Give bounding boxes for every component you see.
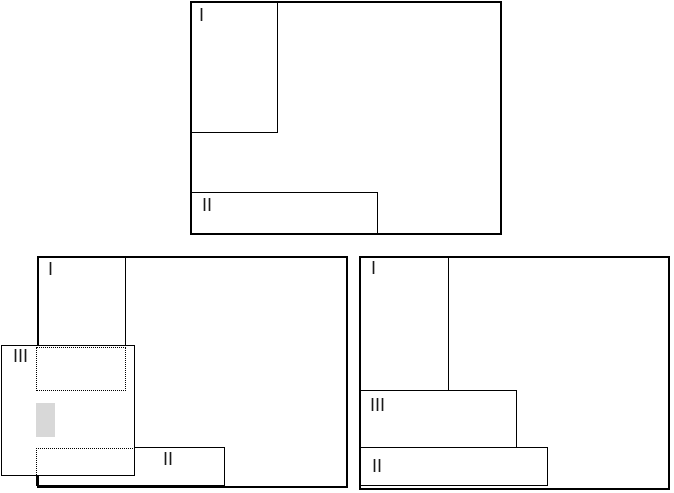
- window-1-label: I: [371, 259, 376, 277]
- window-1-hidden-dotted-outline: [36, 347, 126, 391]
- windows-stacking-diagram: I II I III II I III II: [0, 0, 674, 493]
- window-3-label: III: [370, 396, 385, 414]
- shaded-rect: [36, 403, 55, 437]
- window-1-label: I: [199, 6, 204, 24]
- window-1-label: I: [48, 260, 53, 278]
- window-3-label: III: [13, 347, 28, 365]
- window-2-label: II: [372, 457, 382, 475]
- window-2-hidden-dotted-outline: [36, 448, 135, 475]
- window-2-outline-bottom-right: [359, 447, 548, 486]
- window-2-outline-top: [190, 192, 378, 234]
- window-2-label: II: [202, 196, 212, 214]
- window-2-label: II: [163, 450, 173, 468]
